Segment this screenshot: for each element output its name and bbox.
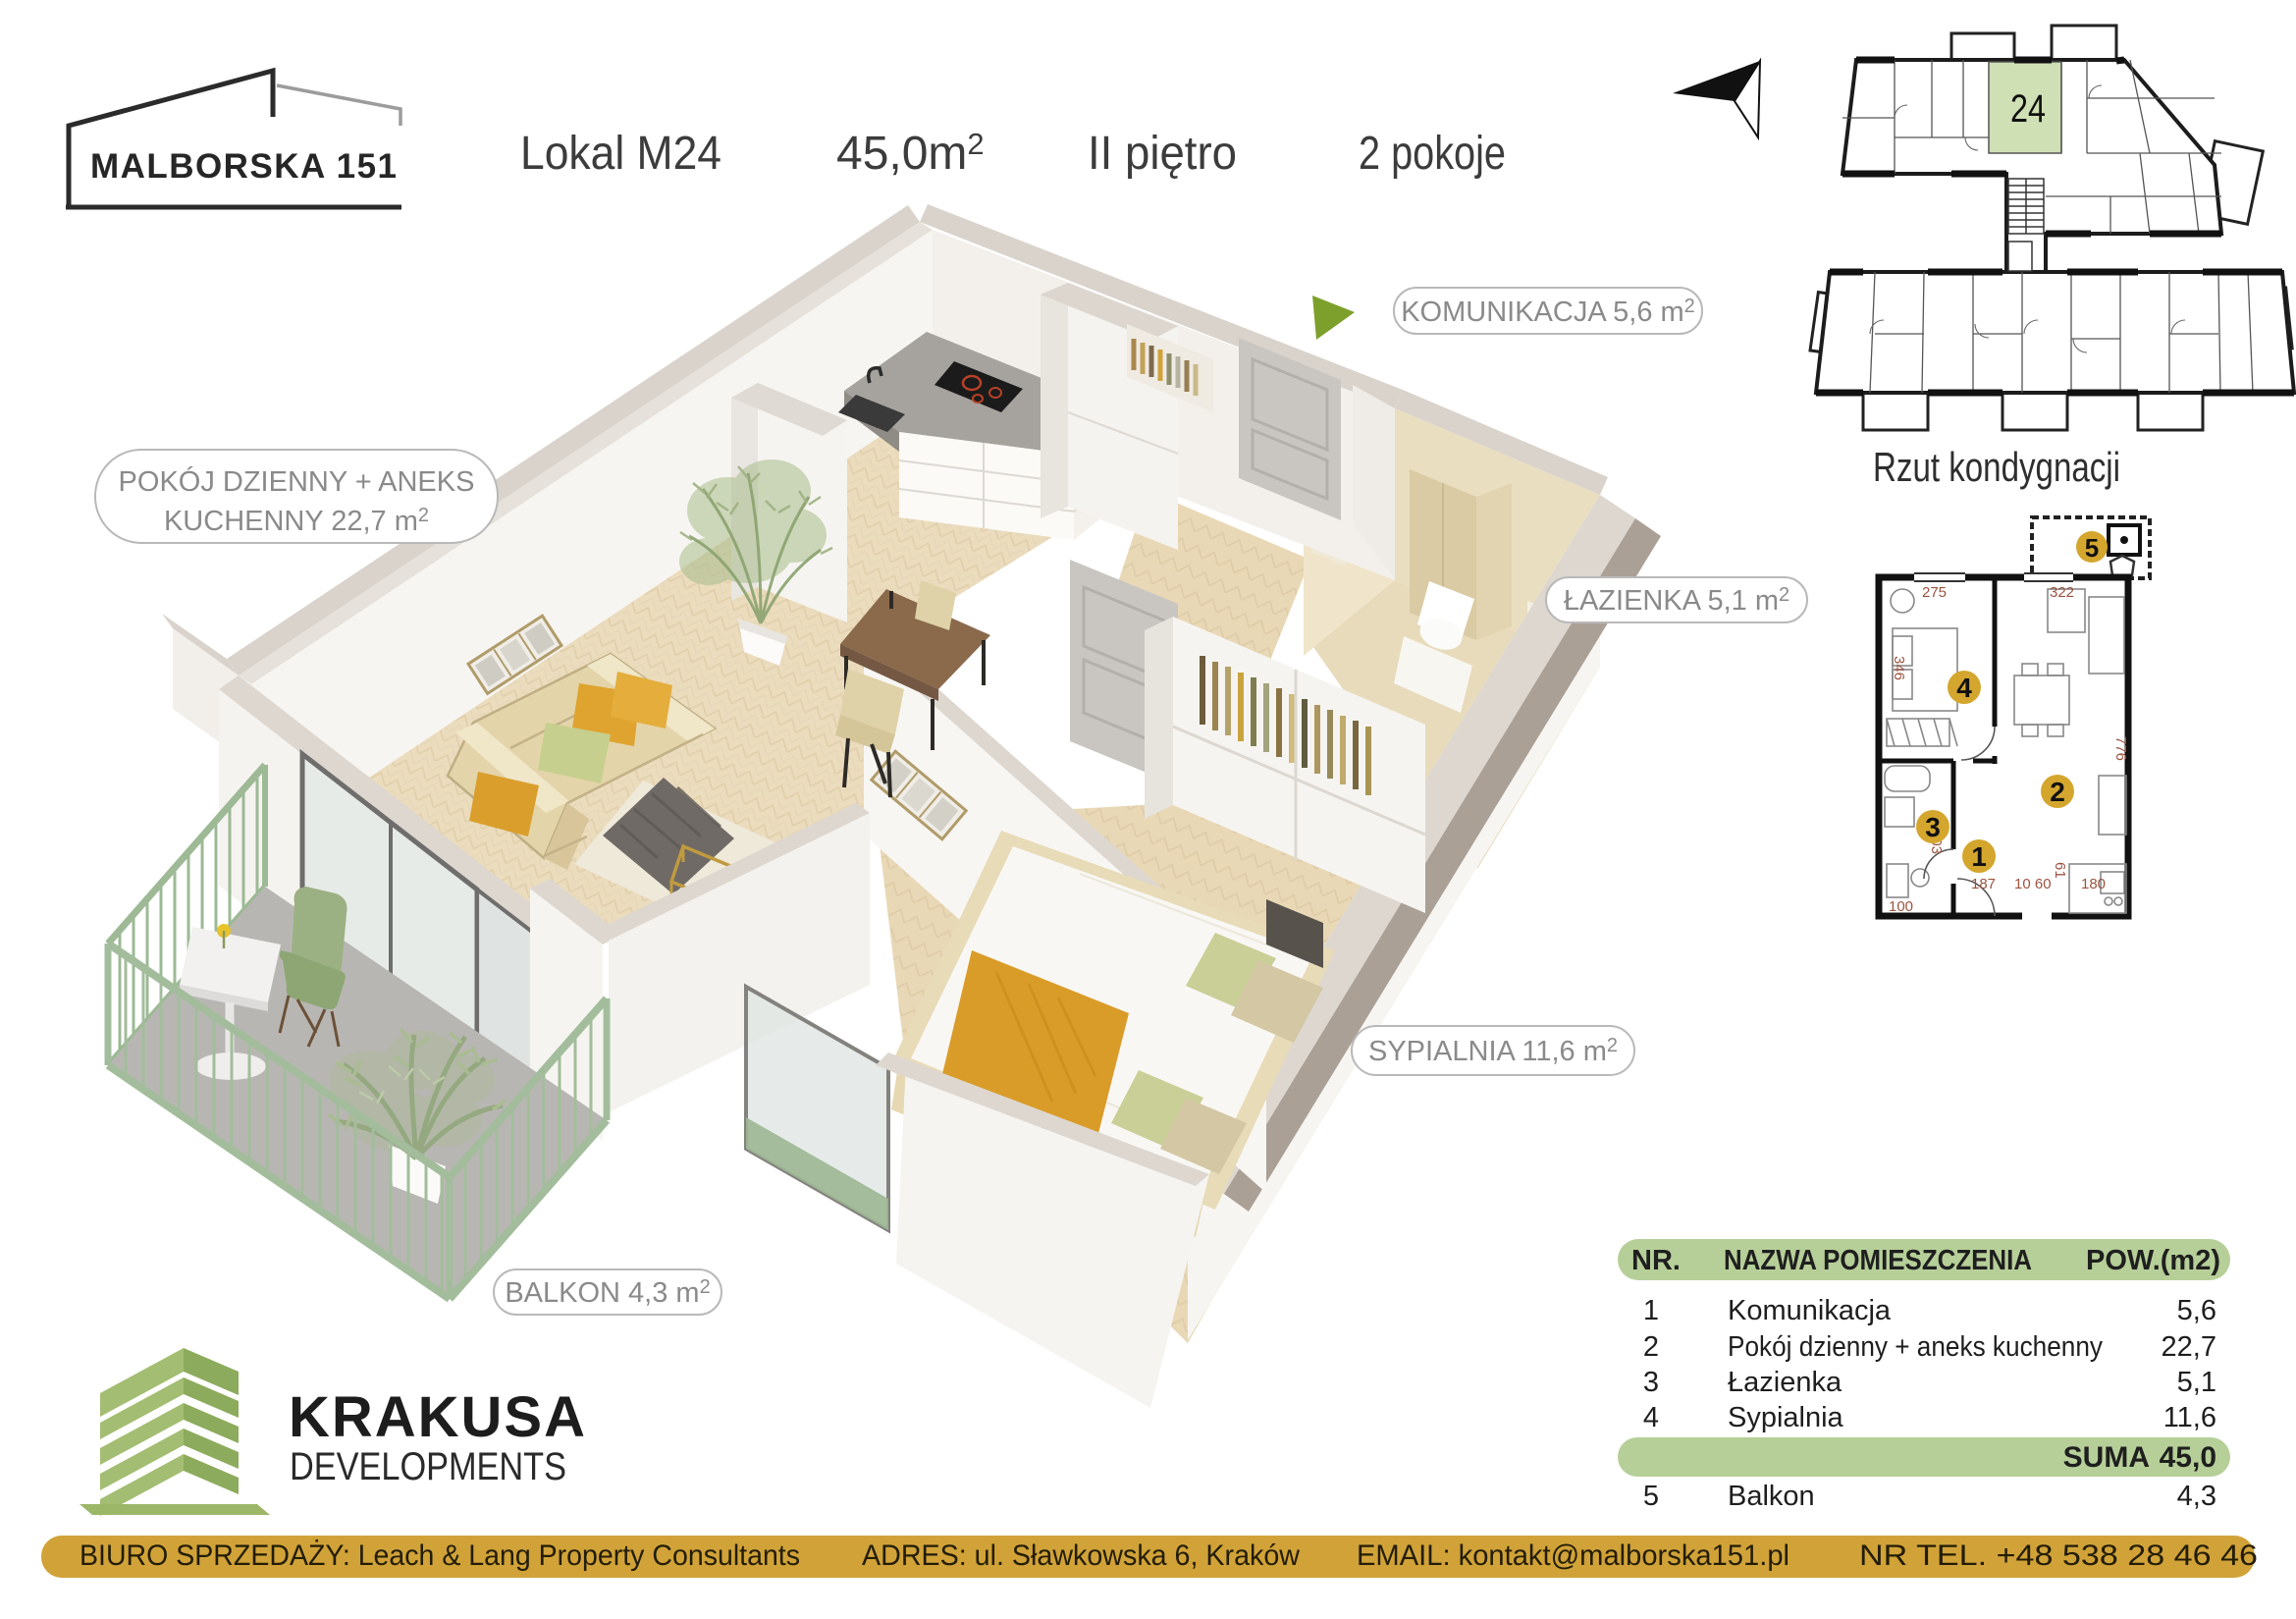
svg-text:4,3: 4,3 xyxy=(2177,1481,2216,1512)
svg-text:275: 275 xyxy=(1922,584,1947,601)
svg-text:KOMUNIKACJA 5,6 m2: KOMUNIKACJA 5,6 m2 xyxy=(1401,296,1695,328)
svg-text:KUCHENNY 22,7 m2: KUCHENNY 22,7 m2 xyxy=(164,505,429,537)
svg-text:POKÓJ DZIENNY + ANEKS: POKÓJ DZIENNY + ANEKS xyxy=(119,465,475,498)
svg-text:Łazienka: Łazienka xyxy=(1728,1367,1842,1398)
svg-text:5: 5 xyxy=(2085,533,2099,563)
svg-text:DEVELOPMENTS: DEVELOPMENTS xyxy=(290,1445,566,1488)
svg-text:100: 100 xyxy=(1889,898,1913,915)
svg-text:5,1: 5,1 xyxy=(2177,1367,2216,1398)
svg-text:2: 2 xyxy=(1643,1331,1659,1363)
svg-text:Rzut kondygnacji: Rzut kondygnacji xyxy=(1873,444,2120,490)
svg-text:ADRES: ul. Sławkowska 6, Krak: ADRES: ul. Sławkowska 6, Kraków xyxy=(862,1539,1300,1572)
svg-text:II piętro: II piętro xyxy=(1088,128,1237,180)
svg-text:NR.: NR. xyxy=(1631,1245,1681,1276)
svg-text:2: 2 xyxy=(2050,777,2065,807)
svg-text:Balkon: Balkon xyxy=(1728,1481,1815,1512)
svg-text:POW.(m2): POW.(m2) xyxy=(2086,1245,2220,1276)
svg-text:10 60: 10 60 xyxy=(2014,876,2052,892)
svg-text:Lokal M24: Lokal M24 xyxy=(520,128,721,180)
svg-text:Pokój dzienny + aneks kuchenny: Pokój dzienny + aneks kuchenny xyxy=(1728,1331,2103,1363)
svg-text:776: 776 xyxy=(2112,736,2129,761)
svg-text:5,6: 5,6 xyxy=(2177,1295,2216,1326)
svg-text:45,0: 45,0 xyxy=(2160,1441,2216,1474)
svg-text:ŁAZIENKA 5,1 m2: ŁAZIENKA 5,1 m2 xyxy=(1564,584,1789,617)
svg-text:BALKON 4,3 m2: BALKON 4,3 m2 xyxy=(505,1276,710,1309)
svg-text:1: 1 xyxy=(1971,841,1987,872)
svg-text:11,6: 11,6 xyxy=(2163,1402,2216,1433)
svg-text:4: 4 xyxy=(1956,673,1972,703)
svg-text:180: 180 xyxy=(2081,876,2106,892)
svg-text:2 pokoje: 2 pokoje xyxy=(1359,128,1506,180)
svg-text:4: 4 xyxy=(1643,1402,1659,1433)
svg-text:KRAKUSA: KRAKUSA xyxy=(289,1385,587,1449)
svg-text:1: 1 xyxy=(1643,1295,1659,1326)
svg-text:5: 5 xyxy=(1643,1481,1659,1512)
svg-text:BIURO SPRZEDAŻY: Leach & Lang: BIURO SPRZEDAŻY: Leach & Lang Property C… xyxy=(80,1539,800,1572)
svg-text:NR TEL. +48 538 28 46 46: NR TEL. +48 538 28 46 46 xyxy=(1859,1539,2258,1572)
svg-text:3: 3 xyxy=(1925,812,1941,842)
svg-text:NAZWA POMIESZCZENIA: NAZWA POMIESZCZENIA xyxy=(1724,1245,2032,1276)
svg-text:MALBORSKA 151: MALBORSKA 151 xyxy=(90,147,397,186)
svg-text:SYPIALNIA 11,6 m2: SYPIALNIA 11,6 m2 xyxy=(1368,1035,1618,1067)
svg-text:45,0m2: 45,0m2 xyxy=(836,127,985,180)
svg-text:61: 61 xyxy=(2052,862,2068,879)
svg-text:Komunikacja: Komunikacja xyxy=(1728,1295,1892,1326)
svg-text:3: 3 xyxy=(1643,1367,1659,1398)
svg-text:24: 24 xyxy=(2010,87,2046,131)
svg-text:346: 346 xyxy=(1891,656,1907,680)
svg-text:187: 187 xyxy=(1971,876,1996,892)
svg-text:SUMA: SUMA xyxy=(2063,1441,2150,1474)
svg-text:322: 322 xyxy=(2050,584,2074,601)
svg-text:Sypialnia: Sypialnia xyxy=(1728,1402,1844,1433)
svg-text:22,7: 22,7 xyxy=(2162,1331,2216,1363)
svg-text:EMAIL: kontakt@malborska151.pl: EMAIL: kontakt@malborska151.pl xyxy=(1357,1539,1789,1572)
